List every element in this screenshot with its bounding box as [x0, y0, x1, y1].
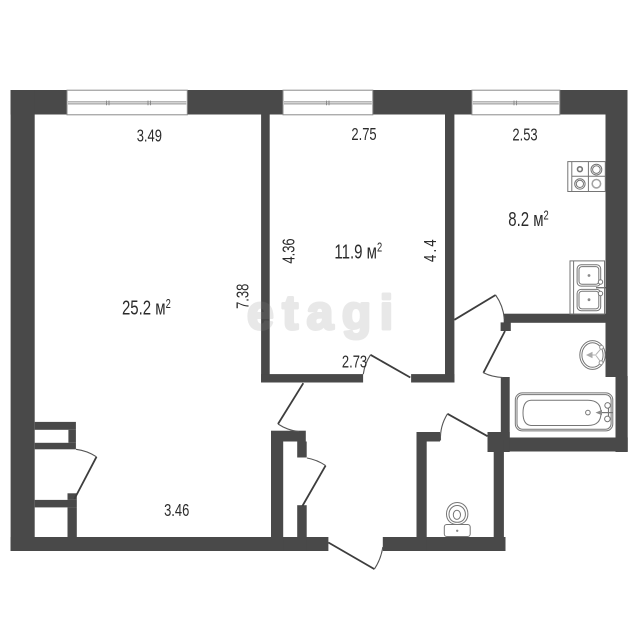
- svg-text:2.73: 2.73: [342, 352, 367, 372]
- svg-text:8.2 м2: 8.2 м2: [508, 208, 549, 231]
- svg-text:2.75: 2.75: [351, 125, 376, 145]
- svg-text:4.4: 4.4: [421, 237, 441, 262]
- svg-text:etagi: etagi: [247, 287, 402, 340]
- svg-text:3.49: 3.49: [137, 126, 162, 146]
- svg-text:4.36: 4.36: [279, 238, 299, 263]
- svg-text:2.53: 2.53: [512, 126, 537, 146]
- svg-text:11.9 м2: 11.9 м2: [334, 240, 382, 263]
- svg-text:25.2 м2: 25.2 м2: [122, 297, 171, 320]
- svg-text:3.46: 3.46: [164, 501, 189, 521]
